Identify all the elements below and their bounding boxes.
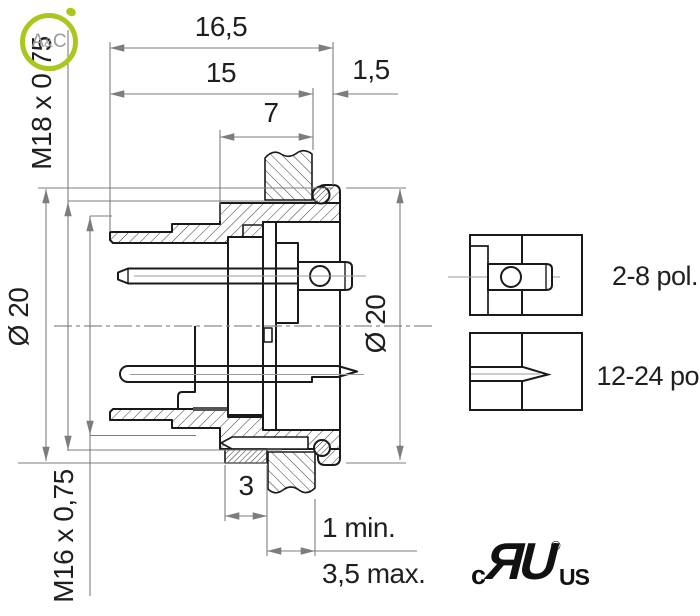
connector-section-view bbox=[110, 151, 357, 493]
cul-us-certification-icon: c ЯU ® US bbox=[471, 540, 606, 592]
detail-view-12-24-pol-label: 12-24 pol. bbox=[574, 363, 700, 390]
ul-us-suffix: US bbox=[559, 564, 589, 591]
o-ring-bottom bbox=[314, 440, 330, 456]
insulator-column bbox=[228, 237, 263, 417]
key-detail bbox=[264, 328, 272, 342]
panel-bottom bbox=[268, 452, 315, 493]
panel-top bbox=[265, 151, 312, 200]
ul-registered-symbol: ® bbox=[551, 538, 561, 553]
solder-cup-hole-detail bbox=[501, 267, 521, 287]
detail-view-2-8-pol-label: 2-8 pol. bbox=[585, 263, 700, 290]
ac-brand-logo: A&C bbox=[20, 13, 80, 73]
detail-view-12-24-pol bbox=[470, 333, 582, 410]
ac-logo-text: A&C bbox=[31, 31, 66, 53]
cavity-back-wall bbox=[178, 326, 195, 409]
dim-7-label: 7 bbox=[246, 99, 296, 127]
dim-3-label: 3 bbox=[221, 472, 271, 500]
ul-recognized-mark-icon: ЯU bbox=[480, 532, 562, 592]
technical-drawing: 16,5 15 1,5 7 M18 x 0,75 Ø 20 M16 x 0,75… bbox=[0, 0, 700, 600]
dim-3-5-max-label: 3,5 max. bbox=[322, 560, 462, 588]
dim-1-min-label: 1 min. bbox=[322, 514, 442, 542]
ac-letter-a: A bbox=[31, 31, 44, 53]
dim-1-5-label: 1,5 bbox=[336, 56, 406, 84]
diameter-20-right-label: Ø 20 bbox=[362, 284, 390, 364]
ac-logo-circle-icon: A&C bbox=[20, 13, 78, 71]
thread-m16-label: M16 x 0,75 bbox=[50, 456, 78, 616]
dim-15-label: 15 bbox=[176, 59, 266, 87]
dim-16-5-label: 16,5 bbox=[176, 13, 266, 41]
ac-ampersand: & bbox=[44, 35, 53, 50]
diameter-20-left-label: Ø 20 bbox=[5, 277, 33, 357]
spring-washer bbox=[225, 449, 267, 463]
detail-view-2-8-pol bbox=[448, 235, 582, 315]
ac-letter-c: C bbox=[53, 31, 67, 53]
lock-washer-tab bbox=[221, 437, 308, 449]
drawing-linework bbox=[0, 0, 700, 600]
